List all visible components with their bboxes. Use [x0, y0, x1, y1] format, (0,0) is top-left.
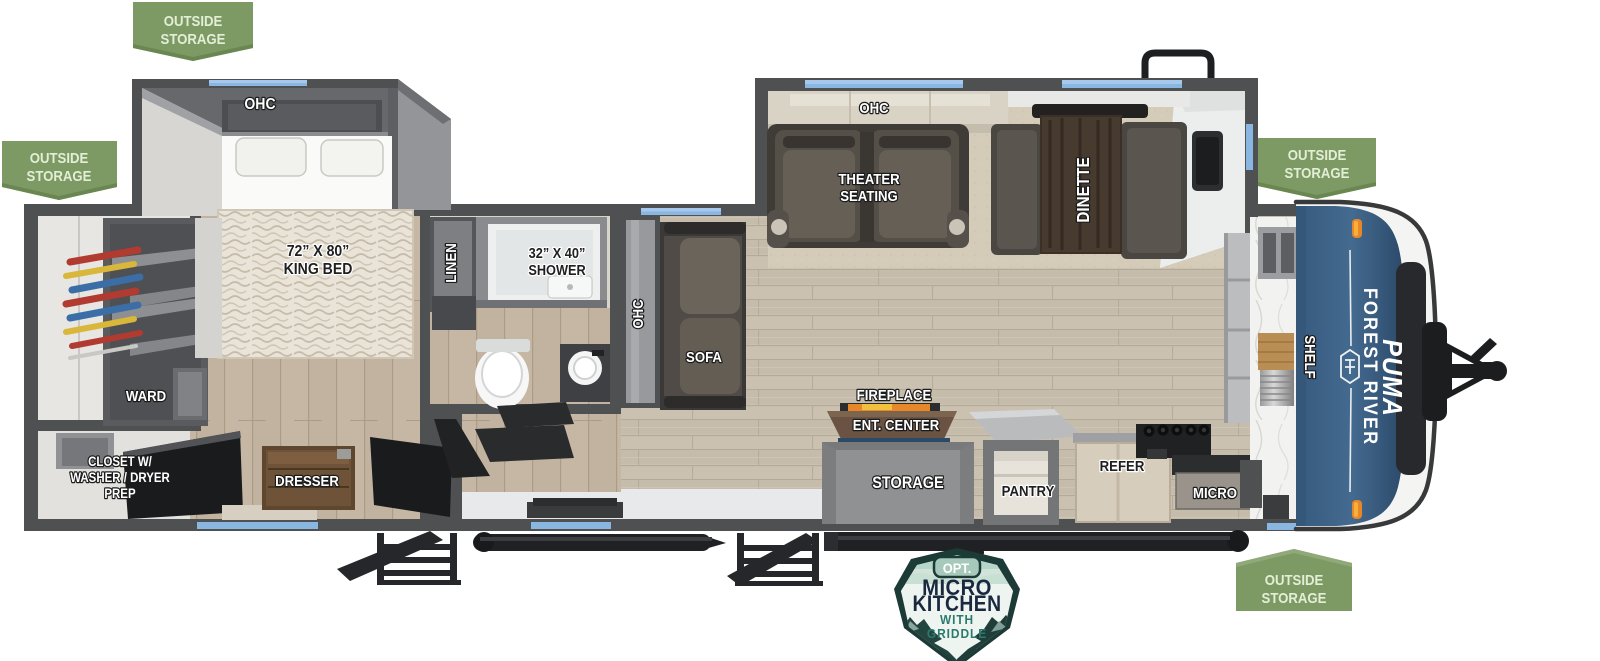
svg-text:SHOWER: SHOWER: [528, 262, 585, 278]
svg-text:OHC: OHC: [859, 99, 888, 116]
svg-text:72” X 80”: 72” X 80”: [287, 242, 350, 260]
svg-text:THEATER: THEATER: [838, 170, 899, 187]
svg-text:SHELF: SHELF: [1302, 335, 1319, 379]
svg-text:STORAGE: STORAGE: [27, 167, 92, 184]
svg-text:OPT.: OPT.: [943, 561, 972, 577]
svg-text:WASHER / DRYER: WASHER / DRYER: [70, 470, 170, 485]
svg-text:OUTSIDE: OUTSIDE: [1265, 571, 1324, 588]
svg-text:CLOSET W/: CLOSET W/: [88, 454, 152, 469]
svg-text:SOFA: SOFA: [686, 348, 722, 365]
svg-text:OUTSIDE: OUTSIDE: [30, 149, 89, 166]
svg-text:FIREPLACE: FIREPLACE: [857, 386, 932, 403]
svg-text:OHC: OHC: [244, 95, 275, 113]
svg-text:ENT. CENTER: ENT. CENTER: [853, 416, 939, 433]
svg-text:OUTSIDE: OUTSIDE: [164, 12, 223, 29]
svg-text:GRIDDLE: GRIDDLE: [927, 627, 987, 642]
svg-text:STORAGE: STORAGE: [1262, 589, 1327, 606]
svg-text:DRESSER: DRESSER: [275, 472, 339, 489]
svg-text:WARD: WARD: [126, 387, 166, 404]
svg-text:PANTRY: PANTRY: [1002, 482, 1055, 499]
svg-text:SEATING: SEATING: [840, 187, 898, 204]
svg-text:MICRO: MICRO: [1193, 484, 1237, 501]
svg-text:STORAGE: STORAGE: [1285, 164, 1350, 181]
svg-text:OUTSIDE: OUTSIDE: [1288, 146, 1347, 163]
svg-text:LINEN: LINEN: [442, 243, 459, 283]
svg-text:DINETTE: DINETTE: [1073, 157, 1093, 222]
svg-text:STORAGE: STORAGE: [872, 474, 944, 492]
svg-text:STORAGE: STORAGE: [161, 30, 226, 47]
svg-text:KING BED: KING BED: [284, 260, 353, 278]
svg-text:32” X 40”: 32” X 40”: [529, 245, 586, 261]
svg-text:PREP: PREP: [104, 486, 135, 501]
svg-text:REFER: REFER: [1100, 457, 1145, 474]
svg-text:WITH: WITH: [940, 613, 974, 627]
svg-text:OHC: OHC: [629, 299, 646, 328]
svg-text:PUMA: PUMA: [1377, 339, 1409, 417]
